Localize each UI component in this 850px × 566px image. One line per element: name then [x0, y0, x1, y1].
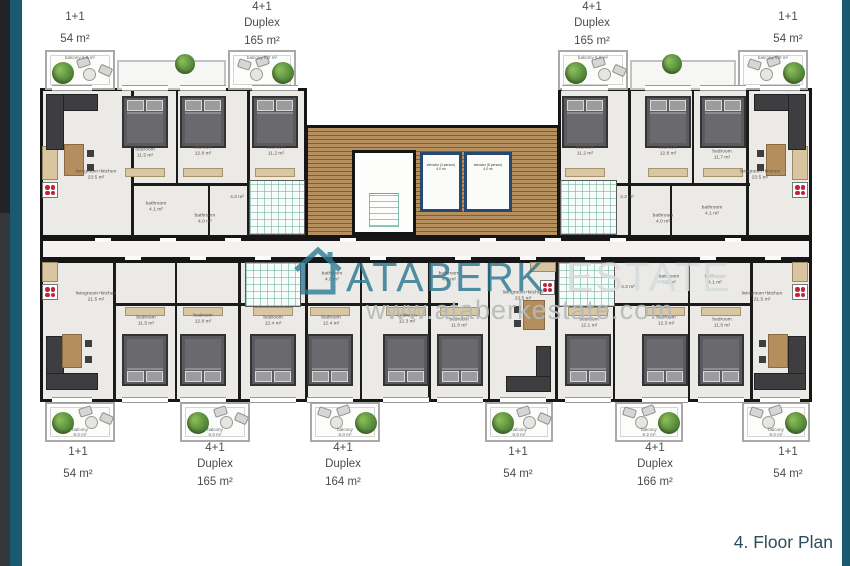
dining-chair — [85, 340, 92, 347]
plant — [783, 62, 805, 84]
room-label: livingroom+kitchen21.5 m² — [67, 292, 125, 305]
dining-chair — [759, 340, 766, 347]
room-label: bedroom12.8 m² — [193, 314, 212, 327]
room-name: livingroom+kitchen — [76, 170, 117, 175]
unit-type: 4+1 — [645, 442, 665, 454]
room-area: 11.7 m² — [714, 156, 730, 161]
stair-flight — [369, 193, 399, 227]
window — [645, 85, 691, 91]
wall — [750, 260, 753, 402]
plant — [662, 54, 682, 74]
room-area: 21.5 m² — [754, 298, 771, 303]
window — [383, 397, 429, 403]
chair — [749, 406, 764, 419]
round-table — [760, 68, 773, 81]
room-area: 11.5 m² — [138, 322, 154, 327]
sofa — [46, 373, 98, 390]
room-label: bedroom12.8 m² — [658, 146, 677, 159]
stove — [792, 284, 808, 300]
bed — [122, 334, 168, 386]
unit-area: 166 m² — [637, 475, 673, 491]
unit-area: 165 m² — [244, 34, 280, 50]
sofa — [46, 94, 64, 150]
window — [122, 397, 168, 403]
bed — [180, 334, 226, 386]
unit-type: 1+1 — [778, 11, 798, 23]
room-label: bedroom11.7 m² — [712, 150, 731, 163]
room-name: bedroom — [321, 316, 340, 321]
balcony-label: balcony — [768, 427, 784, 432]
kitchen-counter — [42, 146, 58, 180]
sofa — [788, 94, 806, 150]
dining-chair — [87, 150, 94, 157]
window — [760, 397, 800, 403]
unit-label: 4+1 Duplex 165 m² — [197, 441, 233, 491]
stove — [792, 182, 808, 198]
stove — [42, 182, 58, 198]
chair — [98, 64, 114, 78]
wall — [670, 183, 672, 238]
balcony: balcony 6.0 m² — [738, 50, 808, 90]
unit-type: 4+1 — [333, 442, 353, 454]
room-label: bedroom11.2 m² — [575, 146, 594, 159]
wall — [176, 88, 178, 185]
room-name: bedroom — [193, 146, 212, 151]
round-table — [598, 68, 611, 81]
room-name: bedroom — [263, 316, 282, 321]
door-gap — [125, 256, 141, 260]
unit-label: 4+1 Duplex 166 m² — [637, 441, 673, 491]
balcony: balcony6.0 m² — [485, 402, 553, 442]
bed — [437, 334, 483, 386]
round-table — [83, 68, 96, 81]
unit-label: 1+1 54 m² — [503, 445, 532, 482]
wall — [692, 88, 694, 185]
wall — [175, 260, 177, 402]
balcony-label: balcony — [758, 55, 774, 60]
room-name: bedroom — [658, 146, 677, 151]
door-gap — [340, 238, 356, 242]
unit-type: 4+1 — [205, 442, 225, 454]
room-area: 4.0 m² — [198, 220, 212, 225]
watermark-url: www.ataberkestate.com — [366, 295, 674, 326]
dining-table — [768, 334, 788, 368]
balcony-area: 6.0 m² — [595, 55, 608, 60]
balcony-label: balcony — [641, 427, 657, 432]
left-teal-strip — [10, 0, 22, 566]
watermark-brand: ATABERK — [346, 254, 545, 301]
chair — [336, 404, 351, 417]
balcony-label: balcony — [578, 55, 594, 60]
dining-table — [62, 334, 82, 368]
unit-label: 4+1 Duplex 165 m² — [244, 0, 280, 50]
balcony-label: balcony — [207, 427, 223, 432]
left-dark-strip-lower — [0, 213, 10, 566]
room-label: 4.3 m² — [620, 195, 634, 201]
unit-area: 165 m² — [197, 475, 233, 491]
balcony-label: balcony — [511, 427, 527, 432]
sofa — [506, 376, 551, 392]
unit-label: 1+1 54 m² — [773, 445, 802, 482]
balcony-area: 6.0 m² — [264, 55, 277, 60]
bed — [383, 334, 429, 386]
balcony-area: 6.0 m² — [73, 432, 86, 437]
unit-type: 1+1 — [778, 446, 798, 458]
room-name: livingroom+kitchen — [76, 292, 117, 297]
chair — [622, 406, 637, 419]
unit-type2: Duplex — [197, 458, 233, 470]
room-label: bedroom12.4 m² — [263, 316, 282, 329]
window — [565, 397, 611, 403]
room-area: 12.8 m² — [195, 152, 212, 157]
plant — [52, 62, 74, 84]
dining-chair — [757, 150, 764, 157]
house-icon — [290, 244, 346, 298]
bed — [307, 334, 353, 386]
window — [562, 85, 608, 91]
room-label: 4.3 m² — [230, 195, 244, 201]
unit-label: 4+1 Duplex 165 m² — [574, 0, 610, 50]
room-area: 4.3 m² — [230, 195, 244, 200]
room-name: bedroom — [193, 314, 212, 319]
door-gap — [765, 256, 781, 260]
room-name: bedroom — [135, 148, 154, 153]
door-gap — [255, 256, 271, 260]
elevator-2-area: 4.0 m² — [483, 167, 493, 171]
wardrobe — [701, 307, 741, 316]
unit-area: 54 m² — [773, 467, 802, 483]
room-area: 11.2 m² — [577, 152, 593, 157]
chair — [641, 404, 656, 417]
unit-type2: Duplex — [244, 17, 280, 29]
room-area: 11.2 m² — [268, 152, 284, 157]
room-label: livingroom+kitchen23.5 m² — [67, 170, 125, 183]
room-name: bedroom — [575, 146, 594, 151]
window — [180, 397, 226, 403]
balcony: balcony 6.0 m² — [45, 50, 115, 90]
unit-area: 54 m² — [773, 32, 802, 48]
kitchen-counter — [42, 262, 58, 282]
room-area: 4.1 m² — [149, 208, 163, 213]
wardrobe — [125, 168, 165, 177]
floor-plan-canvas: elevator (4 person) 4.0 m² elevator (8 p… — [0, 0, 850, 566]
stove — [42, 284, 58, 300]
chair — [234, 412, 250, 426]
unit-area: 54 m² — [60, 32, 89, 48]
balcony-label: balcony — [65, 55, 81, 60]
balcony-area: 6.0 m² — [338, 432, 351, 437]
stairs — [560, 180, 617, 235]
wall — [208, 183, 210, 238]
wall — [113, 260, 116, 402]
balcony: balcony6.0 m² — [742, 402, 810, 442]
chair — [317, 406, 332, 419]
room-area: 12.8 m² — [195, 320, 212, 325]
window — [700, 85, 746, 91]
watermark-brand-secondary: ESTATE — [566, 254, 731, 301]
door-gap — [610, 238, 626, 242]
room-label: bedroom11.5 m² — [712, 318, 731, 331]
room-label: livingroom+kitchen23.5 m² — [731, 170, 789, 183]
unit-type: 1+1 — [68, 446, 88, 458]
unit-type: 1+1 — [65, 11, 85, 23]
unit-area: 164 m² — [325, 475, 361, 491]
room-area: 11.5 m² — [137, 154, 153, 159]
bed — [562, 96, 608, 148]
balcony: balcony 6.0 m² — [228, 50, 296, 90]
balcony: balcony6.0 m² — [310, 402, 380, 442]
bed — [700, 96, 746, 148]
room-label: bathroom4.1 m² — [702, 206, 723, 219]
plant — [175, 54, 195, 74]
room-label: bedroom11.5 m² — [136, 316, 155, 329]
bed — [565, 334, 611, 386]
wall — [628, 88, 631, 238]
unit-area: 54 m² — [63, 467, 92, 483]
room-area: 12.4 m² — [265, 322, 282, 327]
window — [307, 397, 353, 403]
wall — [746, 88, 749, 238]
room-name: bedroom — [712, 318, 731, 323]
unit-label: 4+1 Duplex 164 m² — [325, 441, 361, 491]
chair — [99, 412, 115, 426]
balcony-label: balcony — [337, 427, 353, 432]
wardrobe — [565, 168, 605, 177]
window — [252, 85, 298, 91]
window — [122, 85, 168, 91]
balcony-area: 6.0 m² — [208, 432, 221, 437]
bed — [642, 334, 688, 386]
window — [500, 397, 546, 403]
wardrobe — [183, 168, 223, 177]
room-area: 4.0 m² — [656, 220, 670, 225]
room-area: 12.4 m² — [323, 322, 340, 327]
balcony-area: 6.0 m² — [775, 55, 788, 60]
dining-chair — [85, 356, 92, 363]
room-name: bathroom — [146, 202, 167, 207]
door-gap — [725, 238, 741, 242]
unit-area: 54 m² — [503, 467, 532, 483]
room-area: 21.5 m² — [88, 298, 105, 303]
wall — [238, 260, 241, 402]
bed — [252, 96, 298, 148]
room-area: 11.5 m² — [714, 324, 730, 329]
room-label: bathroom4.0 m² — [653, 214, 674, 227]
window — [760, 85, 800, 91]
bed — [250, 334, 296, 386]
window — [52, 85, 92, 91]
room-label: bedroom11.2 m² — [266, 146, 285, 159]
door-gap — [545, 238, 561, 242]
chair — [537, 412, 553, 426]
wardrobe — [255, 168, 295, 177]
room-area: 23.5 m² — [88, 176, 105, 181]
stairs — [249, 180, 305, 235]
elevator-2: elevator (8 person) 4.0 m² — [464, 152, 512, 212]
balcony: balcony6.0 m² — [180, 402, 250, 442]
elevator-1: elevator (4 person) 4.0 m² — [420, 152, 462, 212]
room-area: 23.5 m² — [752, 176, 769, 181]
elevator-1-label: elevator (4 person) — [427, 163, 455, 167]
unit-type2: Duplex — [574, 17, 610, 29]
window — [437, 397, 483, 403]
unit-label: 1+1 54 m² — [63, 445, 92, 482]
balcony-area: 6.0 m² — [82, 55, 95, 60]
balcony-area: 6.2 m² — [642, 432, 655, 437]
plant — [565, 62, 587, 84]
chair — [768, 404, 783, 417]
bed — [645, 96, 691, 148]
kitchen-counter — [792, 146, 808, 180]
room-name: bedroom — [266, 146, 285, 151]
sofa — [754, 373, 806, 390]
door-gap — [480, 238, 496, 242]
door-gap — [225, 238, 241, 242]
unit-label: 1+1 54 m² — [773, 10, 802, 47]
door-gap — [95, 238, 111, 242]
balcony-area: 6.0 m² — [769, 432, 782, 437]
room-label: bathroom4.0 m² — [195, 214, 216, 227]
room-area: 4.1 m² — [705, 212, 719, 217]
room-area: 12.8 m² — [660, 152, 677, 157]
window — [52, 397, 92, 403]
dining-chair — [759, 356, 766, 363]
unit-type: 4+1 — [252, 1, 272, 13]
bed — [698, 334, 744, 386]
room-label: bathroom4.1 m² — [146, 202, 167, 215]
window — [250, 397, 296, 403]
room-name: livingroom+kitchen — [740, 170, 781, 175]
chair — [612, 64, 628, 78]
room-label: bedroom12.8 m² — [193, 146, 212, 159]
unit-type: 1+1 — [508, 446, 528, 458]
balcony: balcony6.0 m² — [45, 402, 115, 442]
window — [642, 397, 688, 403]
unit-label: 1+1 54 m² — [60, 10, 89, 47]
balcony-label: balcony — [72, 427, 88, 432]
door-gap — [190, 256, 206, 260]
room-name: bedroom — [136, 316, 155, 321]
room-name: bathroom — [195, 214, 216, 219]
room-area: 4.3 m² — [620, 195, 634, 200]
door-gap — [160, 238, 176, 242]
wardrobe — [648, 168, 688, 177]
room-label: bedroom12.4 m² — [321, 316, 340, 329]
room-name: bathroom — [702, 206, 723, 211]
round-table — [250, 68, 263, 81]
window — [180, 85, 226, 91]
room-name: bedroom — [712, 150, 731, 155]
room-name: livingroom+kitchen — [742, 292, 783, 297]
room-label: livingroom+kitchen21.5 m² — [733, 292, 791, 305]
unit-area: 165 m² — [574, 34, 610, 50]
balcony-label: balcony — [247, 55, 263, 60]
balcony-area: 6.0 m² — [512, 432, 525, 437]
room-name: bathroom — [653, 214, 674, 219]
right-teal-strip — [842, 0, 850, 566]
window — [698, 397, 744, 403]
balcony: balcony6.2 m² — [615, 402, 683, 442]
unit-type2: Duplex — [637, 458, 673, 470]
kitchen-counter — [792, 262, 808, 282]
unit-type: 4+1 — [582, 1, 602, 13]
unit-type2: Duplex — [325, 458, 361, 470]
elevator-2-label: elevator (8 person) — [474, 163, 502, 167]
room-label: bedroom11.5 m² — [135, 148, 154, 161]
floor-plan-title: 4. Floor Plan — [734, 532, 833, 553]
balcony: balcony 6.0 m² — [558, 50, 628, 90]
bed — [122, 96, 168, 148]
elevator-1-area: 4.0 m² — [436, 167, 446, 171]
bed — [180, 96, 226, 148]
plant — [272, 62, 294, 84]
